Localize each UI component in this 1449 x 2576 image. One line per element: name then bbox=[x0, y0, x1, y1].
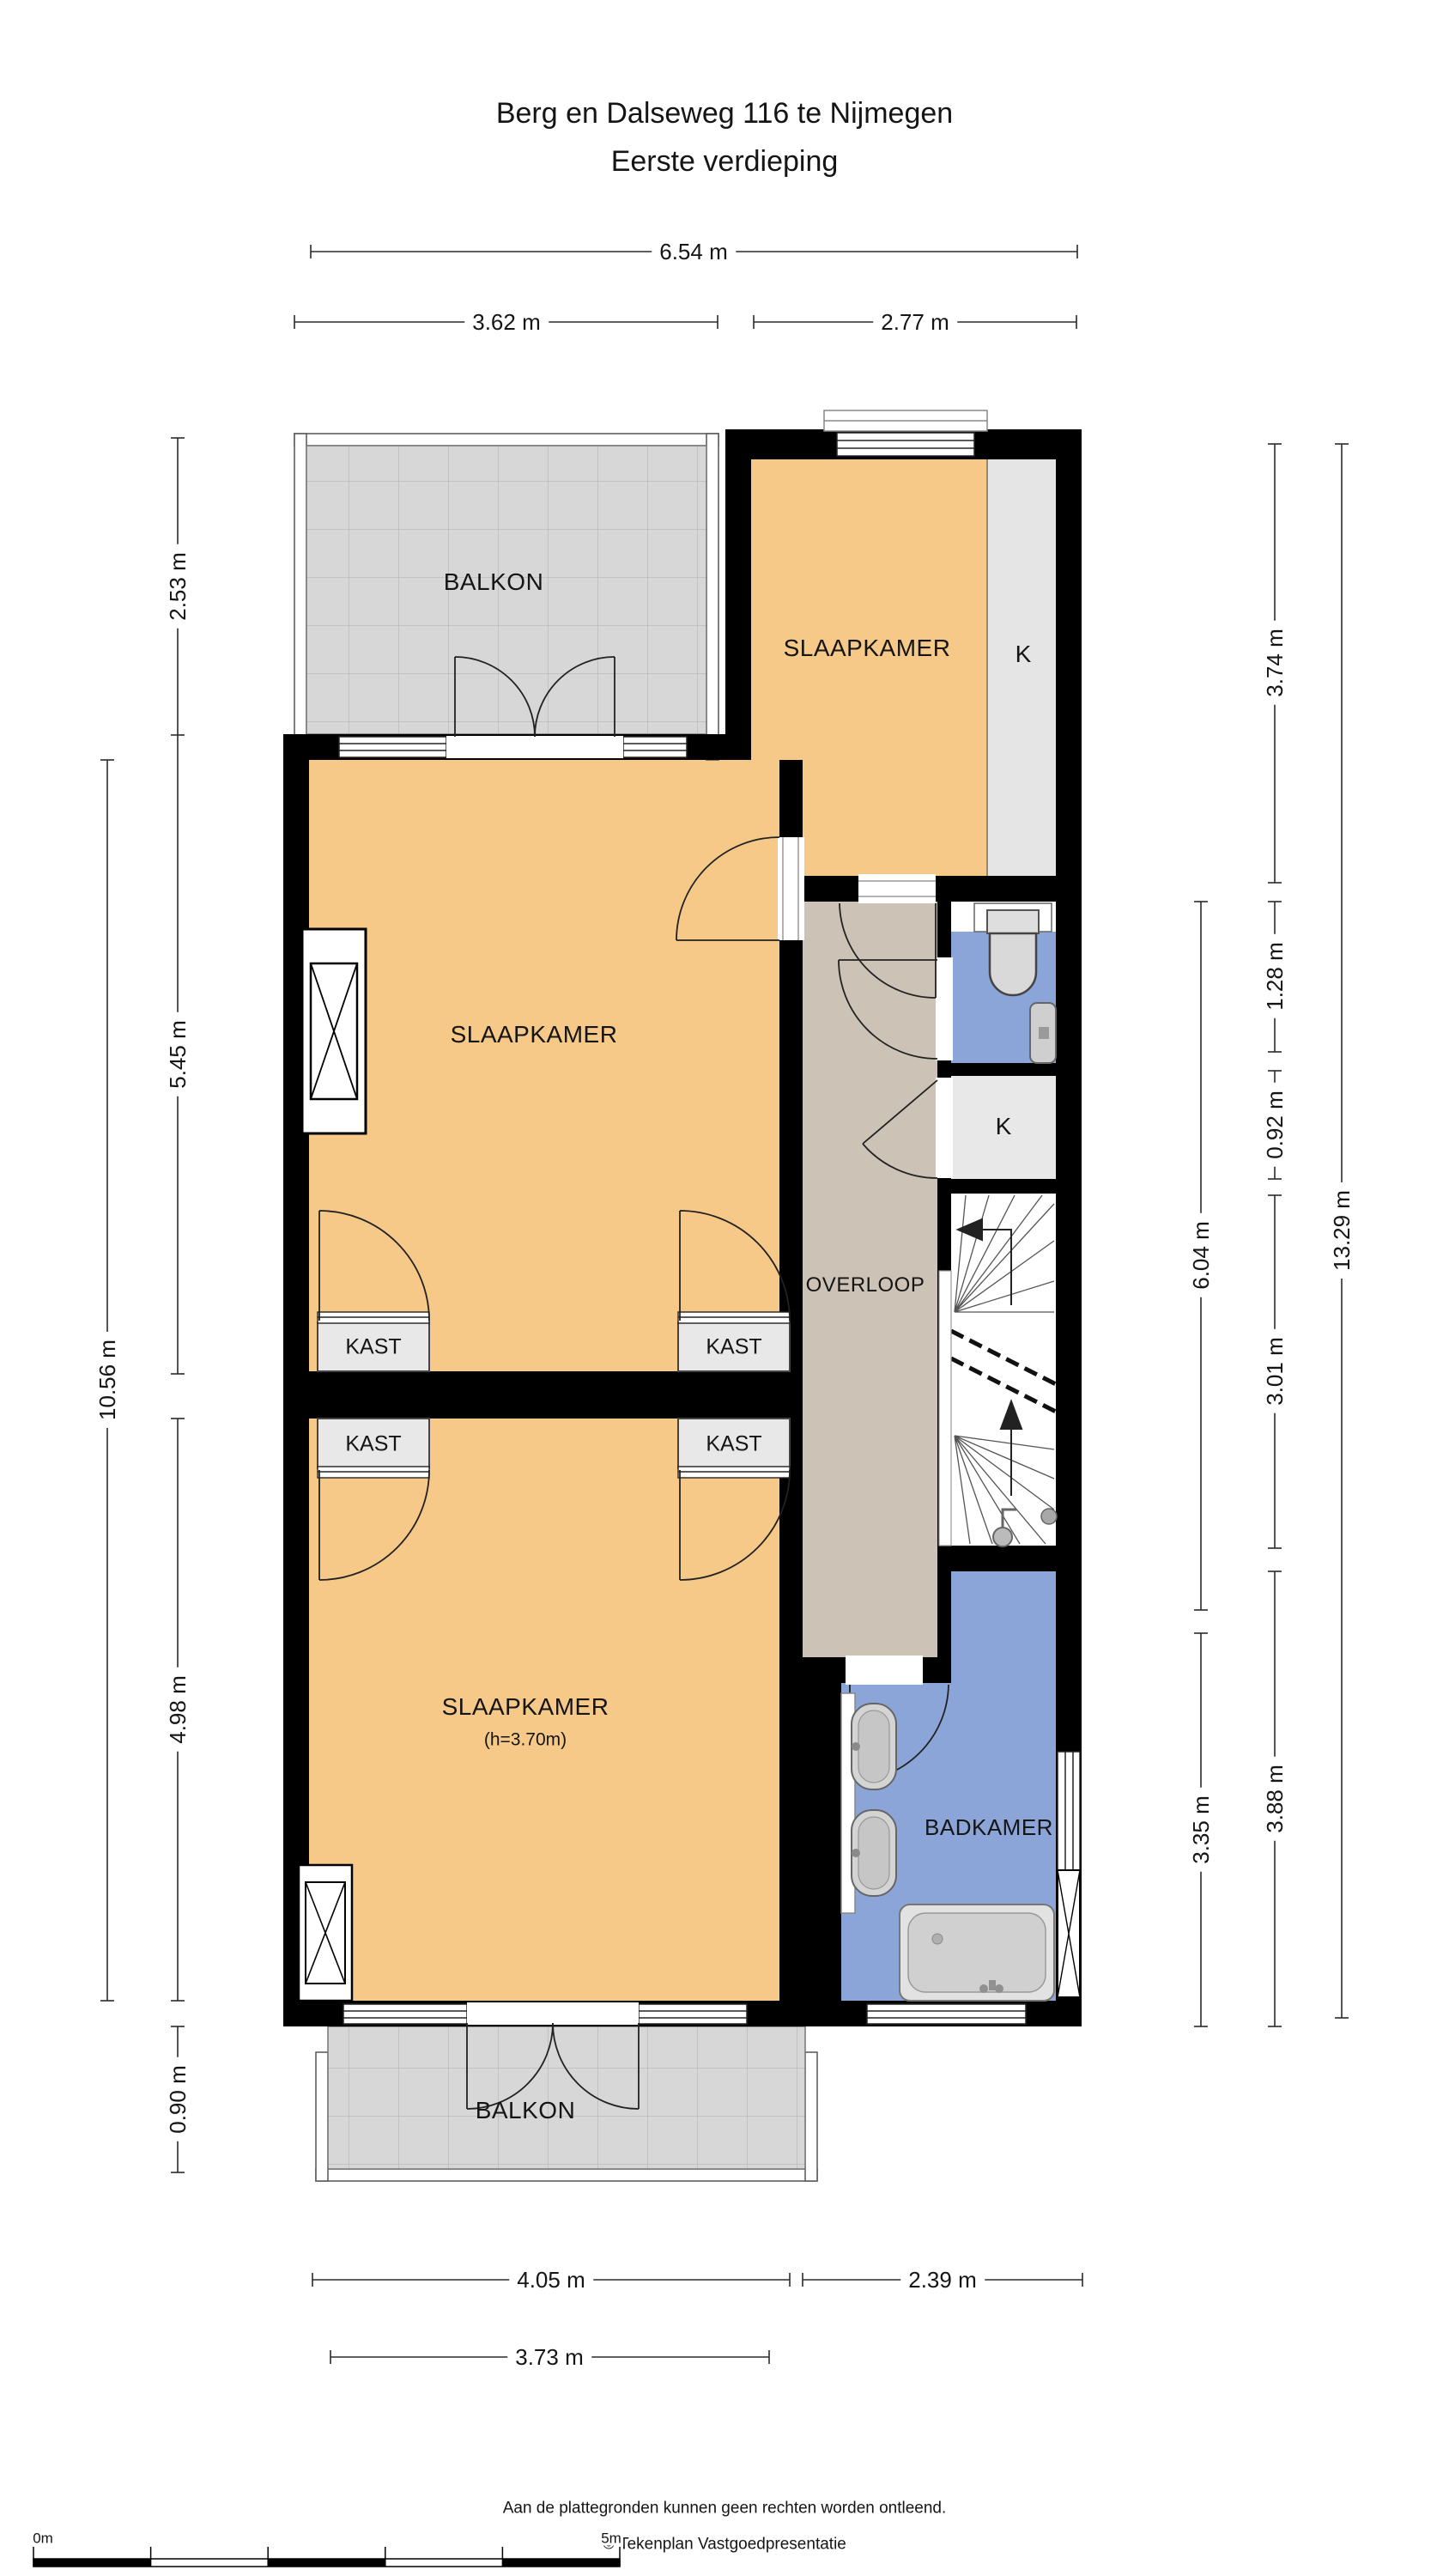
dim-label-0-92: 0.92 m bbox=[1262, 1083, 1288, 1167]
room-label-k-closet: K bbox=[996, 1115, 1012, 1139]
room-label-slaapkamer-top: SLAAPKAMER bbox=[784, 636, 951, 660]
room-label-kast-2: KAST bbox=[706, 1337, 761, 1358]
scale-bar bbox=[33, 2547, 620, 2567]
room-label-badkamer: BADKAMER bbox=[925, 1816, 1053, 1838]
floorplan-page: Berg en Dalseweg 116 te Nijmegen Eerste … bbox=[0, 0, 1449, 2576]
dim-label-2-77: 2.77 m bbox=[873, 309, 957, 335]
dim-label-2-53: 2.53 m bbox=[165, 544, 191, 629]
room-slaapkamer-mid bbox=[309, 760, 779, 1371]
dim-label-3-88: 3.88 m bbox=[1262, 1757, 1288, 1841]
dim-label-0-90: 0.90 m bbox=[165, 2057, 191, 2142]
stair-open-side bbox=[939, 1271, 951, 1546]
room-label-slaapkamer-mid: SLAAPKAMER bbox=[451, 1023, 618, 1047]
room-label-balkon-top: BALKON bbox=[444, 570, 544, 594]
footer-copyright: © Tekenplan Vastgoedpresentatie bbox=[603, 2537, 846, 2553]
wc-sink-tap bbox=[1039, 1027, 1049, 1039]
dim-label-1-28: 1.28 m bbox=[1262, 934, 1288, 1018]
dim-label-5-45: 5.45 m bbox=[165, 1012, 191, 1097]
dim-label-13-29: 13.29 m bbox=[1329, 1182, 1355, 1279]
dim-label-6-04: 6.04 m bbox=[1188, 1213, 1214, 1297]
page-title: Berg en Dalseweg 116 te Nijmegen bbox=[496, 99, 953, 128]
room-label-slaapkamer-bottom: SLAAPKAMER bbox=[442, 1695, 609, 1719]
room-label-kast-1: KAST bbox=[345, 1337, 401, 1358]
room-label-kast-3: KAST bbox=[345, 1434, 401, 1455]
dim-label-10-56: 10.56 m bbox=[94, 1332, 120, 1428]
closet-strip-top bbox=[987, 459, 1056, 876]
room-label-kast-4: KAST bbox=[706, 1434, 761, 1455]
footer-disclaimer: Aan de plattegronden kunnen geen rechten… bbox=[503, 2500, 947, 2517]
duct-bottom-right bbox=[1058, 1870, 1080, 1997]
dim-label-6-54: 6.54 m bbox=[652, 239, 736, 264]
dim-label-3-01: 3.01 m bbox=[1262, 1329, 1288, 1413]
toilet-bowl bbox=[990, 933, 1036, 995]
room-label-slaapkamer-bottom-height: (h=3.70m) bbox=[484, 1731, 567, 1749]
dim-label-3-62: 3.62 m bbox=[464, 309, 549, 335]
room-label-balkon-bottom: BALKON bbox=[476, 2099, 576, 2123]
dim-label-4-05: 4.05 m bbox=[509, 2267, 593, 2293]
floorplan-svg bbox=[0, 0, 1449, 2576]
toilet-tank bbox=[987, 910, 1039, 933]
shower-head-icon bbox=[993, 1528, 1012, 1546]
dim-label-4-98: 4.98 m bbox=[165, 1668, 191, 1752]
room-label-overloop: OVERLOOP bbox=[806, 1275, 925, 1296]
page-subtitle: Eerste verdieping bbox=[611, 147, 839, 176]
balcony-top bbox=[294, 434, 718, 760]
dim-label-3-73: 3.73 m bbox=[507, 2344, 591, 2370]
dim-label-3-74: 3.74 m bbox=[1262, 621, 1288, 705]
chimney-mid bbox=[302, 929, 366, 1133]
room-label-k-top: K bbox=[1016, 642, 1032, 666]
scale-bar-end-label: 5m bbox=[599, 2531, 623, 2546]
dim-label-3-35: 3.35 m bbox=[1188, 1788, 1214, 1872]
shower-drain bbox=[1041, 1509, 1057, 1524]
chimney-bottom bbox=[299, 1865, 352, 2001]
scale-bar-start-label: 0m bbox=[31, 2531, 55, 2546]
dim-label-2-39: 2.39 m bbox=[900, 2267, 985, 2293]
